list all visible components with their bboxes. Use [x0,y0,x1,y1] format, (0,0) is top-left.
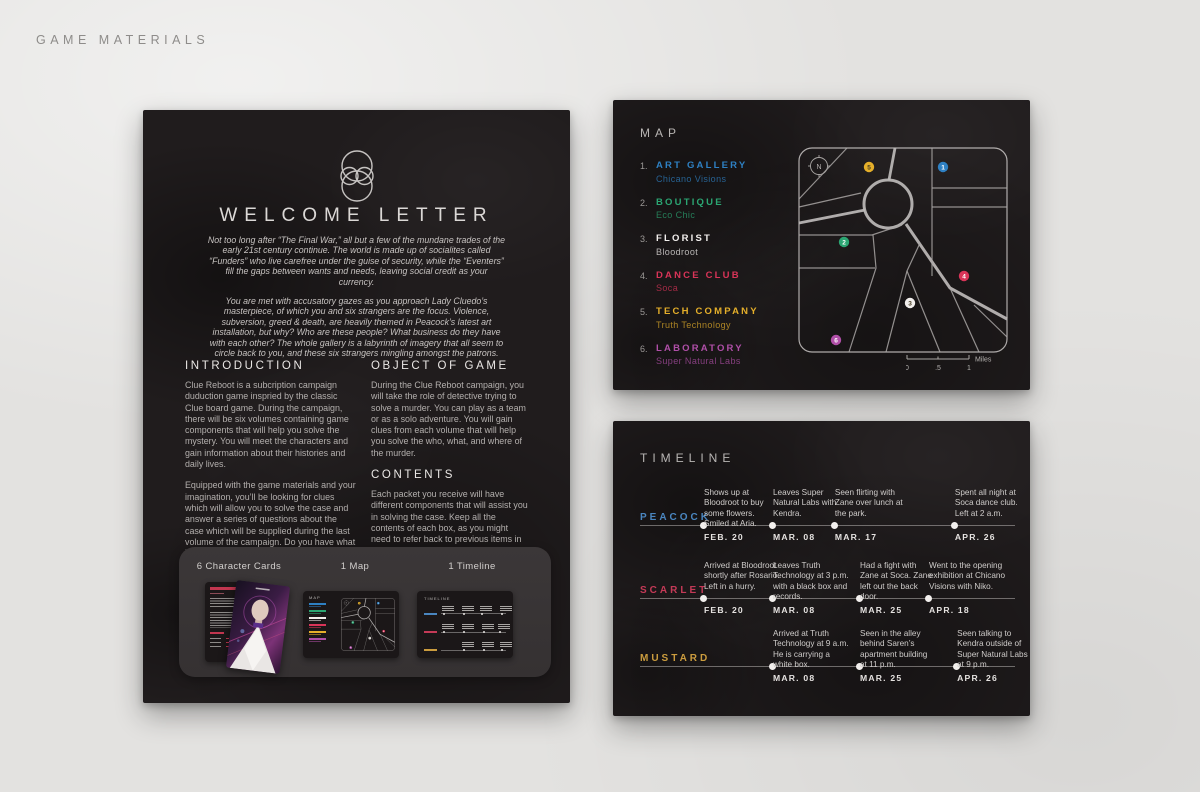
legend-label: BOUTIQUE [656,197,724,208]
map-title: MAP [640,126,681,140]
legend-sublabel: Super Natural Labs [656,356,744,366]
page-title: GAME MATERIALS [36,33,209,47]
timeline-row-mustard: MUSTARD Arrived at Truth Technology at 9… [640,626,1015,688]
row-label: MUSTARD [640,653,710,664]
event-text: Spent all night at Soca dance club. Left… [955,488,1031,519]
city-map [798,147,1008,353]
event-date: MAR. 17 [835,532,915,542]
object-of-game-heading: OBJECT OF GAME [371,360,530,372]
character-portrait [226,580,290,674]
event-date: MAR. 08 [773,673,853,683]
timeline-axis [640,525,1015,526]
event-date: MAR. 08 [773,605,853,615]
intro-paragraph: Not too long after “The Final War,” all … [207,235,507,287]
event-dot [925,595,932,602]
event-date: APR. 26 [957,673,1037,683]
legend-label: DANCE CLUB [656,270,741,281]
letter-title: WELCOME LETTER [143,205,570,227]
map-thumbnail: MAP [303,591,399,658]
event-text: Seen flirting with Zane over lunch at th… [835,488,911,519]
timeline-card: TIMELINE PEACOCK Shows up at Bloodroot t… [613,421,1030,716]
timeline-row-scarlet: SCARLET Arrived at Bloodroot shortly aft… [640,558,1015,620]
object-of-game-paragraph: During the Clue Reboot campaign, you wil… [371,380,530,459]
legend-label: ART GALLERY [656,160,747,171]
character-card-front-thumbnail [226,580,290,674]
letter-intro: Not too long after “The Final War,” all … [207,235,507,358]
map-card: MAP 1. ART GALLERY Chicano Visions 2. BO… [613,100,1030,390]
event-text: Arrived at Bloodroot shortly after Rosar… [704,561,780,592]
legend-item-dance-club: 4. DANCE CLUB Soca [640,270,759,294]
intro-paragraph: You are met with accusatory gazes as you… [207,296,507,358]
event-date: MAR. 25 [860,605,940,615]
legend-number: 2. [640,197,656,221]
event-dot [700,595,707,602]
event-date: APR. 26 [955,532,1035,542]
map-thumbnail-art [341,598,395,651]
scale-zero: 0 [906,365,909,372]
scale-half: .5 [935,365,941,372]
timeline-thumbnail-title: TIMELINE [424,596,508,601]
legend-number: 3. [640,233,656,257]
contents-heading: CONTENTS [371,469,530,481]
row-label: SCARLET [640,585,708,596]
legend-item-laboratory: 6. LABORATORY Super Natural Labs [640,343,759,367]
legend-item-boutique: 2. BOUTIQUE Eco Chic [640,197,759,221]
timeline-row-peacock: PEACOCK Shows up at Bloodroot to buy som… [640,485,1015,547]
character-cards-label: 6 Character Cards [197,561,281,572]
event-date: FEB. 20 [704,532,784,542]
event-text: Leaves Truth Technology at 3 p.m. with a… [773,561,849,602]
letter-right-column: OBJECT OF GAME During the Clue Reboot ca… [371,360,530,569]
legend-label: TECH COMPANY [656,306,759,317]
legend-sublabel: Eco Chic [656,210,724,220]
scale-unit: Miles [975,357,992,364]
timeline-title: TIMELINE [640,451,735,465]
legend-number: 4. [640,270,656,294]
legend-number: 5. [640,306,656,330]
legend-item-art-gallery: 1. ART GALLERY Chicano Visions [640,160,759,184]
legend-sublabel: Truth Technology [656,320,759,330]
event-dot [831,522,838,529]
legend-label: FLORIST [656,233,712,244]
welcome-letter-card: WELCOME LETTER Not too long after “The F… [143,110,570,703]
event-date: APR. 18 [929,605,1009,615]
event-dot [951,522,958,529]
letter-left-column: INTRODUCTION Clue Reboot is a subcriptio… [185,360,357,569]
legend-sublabel: Soca [656,283,741,293]
event-text: Seen in the alley behind Saren’s apartme… [860,629,936,670]
map-scale-bar: 0 .5 1 Miles [906,353,1006,373]
cluedo-logo-icon [331,147,383,205]
event-date: MAR. 25 [860,673,940,683]
map-legend: 1. ART GALLERY Chicano Visions 2. BOUTIQ… [640,160,759,379]
event-text: Arrived at Truth Technology at 9 a.m. He… [773,629,849,670]
timeline-label: 1 Timeline [448,561,495,572]
components-panel: 6 Character Cards 1 Map 1 Timeline [179,547,551,677]
event-dot [769,522,776,529]
introduction-heading: INTRODUCTION [185,360,357,372]
legend-item-florist: 3. FLORIST Bloodroot [640,233,759,257]
legend-label: LABORATORY [656,343,744,354]
legend-item-tech-company: 5. TECH COMPANY Truth Technology [640,306,759,330]
row-label: PEACOCK [640,512,711,523]
event-text: Seen talking to Kendra outside of Super … [957,629,1033,670]
timeline-thumbnail: TIMELINE [417,591,513,658]
legend-sublabel: Bloodroot [656,247,712,257]
legend-sublabel: Chicano Visions [656,174,747,184]
map-thumbnail-legend [309,603,326,645]
map-label: 1 Map [341,561,369,572]
legend-number: 1. [640,160,656,184]
scale-one: 1 [967,365,971,372]
legend-number: 6. [640,343,656,367]
introduction-paragraph: Clue Reboot is a subcription campaign du… [185,380,357,470]
event-date: FEB. 20 [704,605,784,615]
event-text: Went to the opening exhibition at Chican… [929,561,1005,592]
